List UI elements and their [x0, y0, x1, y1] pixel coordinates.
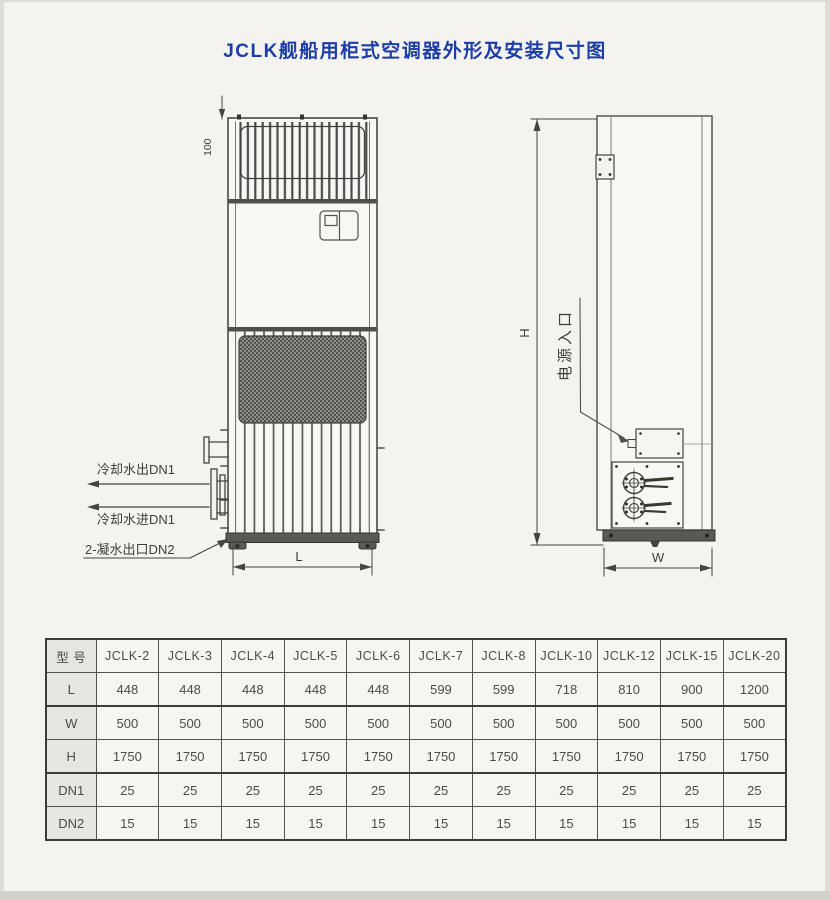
table-cell: 15 — [284, 807, 347, 841]
table-model-header: JCLK-7 — [410, 639, 473, 673]
dimension-W-label: W — [652, 550, 665, 565]
table-cell: 15 — [472, 807, 535, 841]
table-cell: 448 — [159, 673, 222, 707]
table-cell: 15 — [723, 807, 786, 841]
table-model-header: JCLK-20 — [723, 639, 786, 673]
table-cell: 25 — [410, 773, 473, 807]
top-clearance-annotation: 100 — [202, 96, 225, 156]
table-cell: 15 — [221, 807, 284, 841]
table-cell: 1200 — [723, 673, 786, 707]
table-model-header: JCLK-5 — [284, 639, 347, 673]
table-cell: 25 — [221, 773, 284, 807]
table-cell: 500 — [535, 706, 598, 740]
table-cell: 15 — [96, 807, 159, 841]
dimension-L-label: L — [295, 549, 302, 564]
table-row-label: DN1 — [46, 773, 96, 807]
table-cell: 500 — [472, 706, 535, 740]
cooling-water-out-stub — [204, 437, 228, 463]
mounting-bracket — [596, 155, 614, 179]
table-cell: 1750 — [472, 740, 535, 774]
table-cell: 25 — [598, 773, 661, 807]
table-row-label: W — [46, 706, 96, 740]
cooling-water-out-label: 冷却水出DN1 — [97, 462, 175, 477]
mesh-intake-grille — [239, 336, 366, 423]
side-view: 电源入口 — [517, 116, 715, 576]
table-cell: 25 — [723, 773, 786, 807]
power-inlet-label: 电源入口 — [557, 309, 574, 381]
arrow-left-icon — [87, 481, 99, 488]
table-cell: 1750 — [598, 740, 661, 774]
table-cell: 25 — [347, 773, 410, 807]
table-row-label: DN2 — [46, 807, 96, 841]
pipe-labels: 冷却水出DN1 冷却水进DN1 2-凝水出口DN2 — [84, 462, 228, 558]
table-cell: 500 — [347, 706, 410, 740]
table-cell: 810 — [598, 673, 661, 707]
dimension-H-label: H — [517, 328, 532, 337]
scan-edge-bottom — [0, 891, 830, 900]
table-cell: 500 — [660, 706, 723, 740]
table-cell: 718 — [535, 673, 598, 707]
table-cell: 599 — [472, 673, 535, 707]
table-row-label: L — [46, 673, 96, 707]
table-cell: 1750 — [410, 740, 473, 774]
table-row: DN21515151515151515151515 — [46, 807, 786, 841]
table-cell: 1750 — [535, 740, 598, 774]
cooling-water-in-flange — [211, 469, 228, 519]
table-cell: 500 — [159, 706, 222, 740]
table-cell: 15 — [410, 807, 473, 841]
cable-gland — [628, 440, 636, 448]
table-cell: 500 — [284, 706, 347, 740]
table-cell: 448 — [221, 673, 284, 707]
table-model-header: JCLK-8 — [472, 639, 535, 673]
table-cell: 25 — [660, 773, 723, 807]
table-cell: 448 — [96, 673, 159, 707]
table-model-header: JCLK-15 — [660, 639, 723, 673]
table-row: DN12525252525252525252525 — [46, 773, 786, 807]
table-cell: 25 — [159, 773, 222, 807]
cooling-water-in-label: 冷却水进DN1 — [97, 512, 175, 527]
table-cell: 500 — [96, 706, 159, 740]
clearance-arrow — [219, 109, 225, 119]
table-row: W500500500500500500500500500500500 — [46, 706, 786, 740]
dimension-W: W — [604, 548, 712, 576]
arrow-up-right-icon — [217, 539, 228, 548]
table-cell: 1750 — [660, 740, 723, 774]
separator-band-upper — [228, 199, 377, 204]
top-clearance-label: 100 — [202, 138, 214, 156]
table-cell: 500 — [723, 706, 786, 740]
table-header-row: 型 号JCLK-2JCLK-3JCLK-4JCLK-5JCLK-6JCLK-7J… — [46, 639, 786, 673]
table-cell: 25 — [472, 773, 535, 807]
table-row-label: H — [46, 740, 96, 774]
table-cell: 599 — [410, 673, 473, 707]
table-cell: 500 — [410, 706, 473, 740]
table-cell: 900 — [660, 673, 723, 707]
table-model-header: JCLK-2 — [96, 639, 159, 673]
table-cell: 25 — [535, 773, 598, 807]
table-corner-header: 型 号 — [46, 639, 96, 673]
table-model-header: JCLK-10 — [535, 639, 598, 673]
table-cell: 1750 — [723, 740, 786, 774]
table-model-header: JCLK-3 — [159, 639, 222, 673]
table-cell: 15 — [159, 807, 222, 841]
table-cell: 1750 — [159, 740, 222, 774]
table-cell: 1750 — [347, 740, 410, 774]
dimension-spec-table: 型 号JCLK-2JCLK-3JCLK-4JCLK-5JCLK-6JCLK-7J… — [45, 638, 787, 841]
table-cell: 1750 — [96, 740, 159, 774]
table-cell: 448 — [284, 673, 347, 707]
table-model-header: JCLK-6 — [347, 639, 410, 673]
front-feet — [229, 542, 376, 549]
top-louver-grille — [236, 122, 369, 199]
table-row: H175017501750175017501750175017501750175… — [46, 740, 786, 774]
table-cell: 15 — [535, 807, 598, 841]
table-cell: 15 — [598, 807, 661, 841]
front-view: 100 冷却水出DN1 冷却水进DN1 2-凝水出口DN2 L — [84, 96, 384, 575]
connection-panel — [612, 462, 683, 528]
table-row: L4484484484484485995997188109001200 — [46, 673, 786, 707]
table-model-header: JCLK-12 — [598, 639, 661, 673]
table-cell: 1750 — [221, 740, 284, 774]
dimension-L: L — [233, 547, 372, 575]
table-cell: 1750 — [284, 740, 347, 774]
table-cell: 448 — [347, 673, 410, 707]
spec-table-section: 型 号JCLK-2JCLK-3JCLK-4JCLK-5JCLK-6JCLK-7J… — [45, 638, 787, 841]
table-cell: 25 — [284, 773, 347, 807]
control-box — [320, 211, 358, 240]
table-cell: 500 — [598, 706, 661, 740]
table-cell: 25 — [96, 773, 159, 807]
side-base — [603, 530, 715, 547]
table-cell: 500 — [221, 706, 284, 740]
technical-drawing: 100 冷却水出DN1 冷却水进DN1 2-凝水出口DN2 L — [0, 0, 830, 630]
front-base — [226, 533, 379, 543]
separator-band-lower — [228, 327, 377, 332]
table-model-header: JCLK-4 — [221, 639, 284, 673]
table-cell: 15 — [347, 807, 410, 841]
arrow-left-icon — [87, 504, 99, 511]
table-cell: 15 — [660, 807, 723, 841]
condensate-out-label: 2-凝水出口DN2 — [85, 542, 175, 557]
